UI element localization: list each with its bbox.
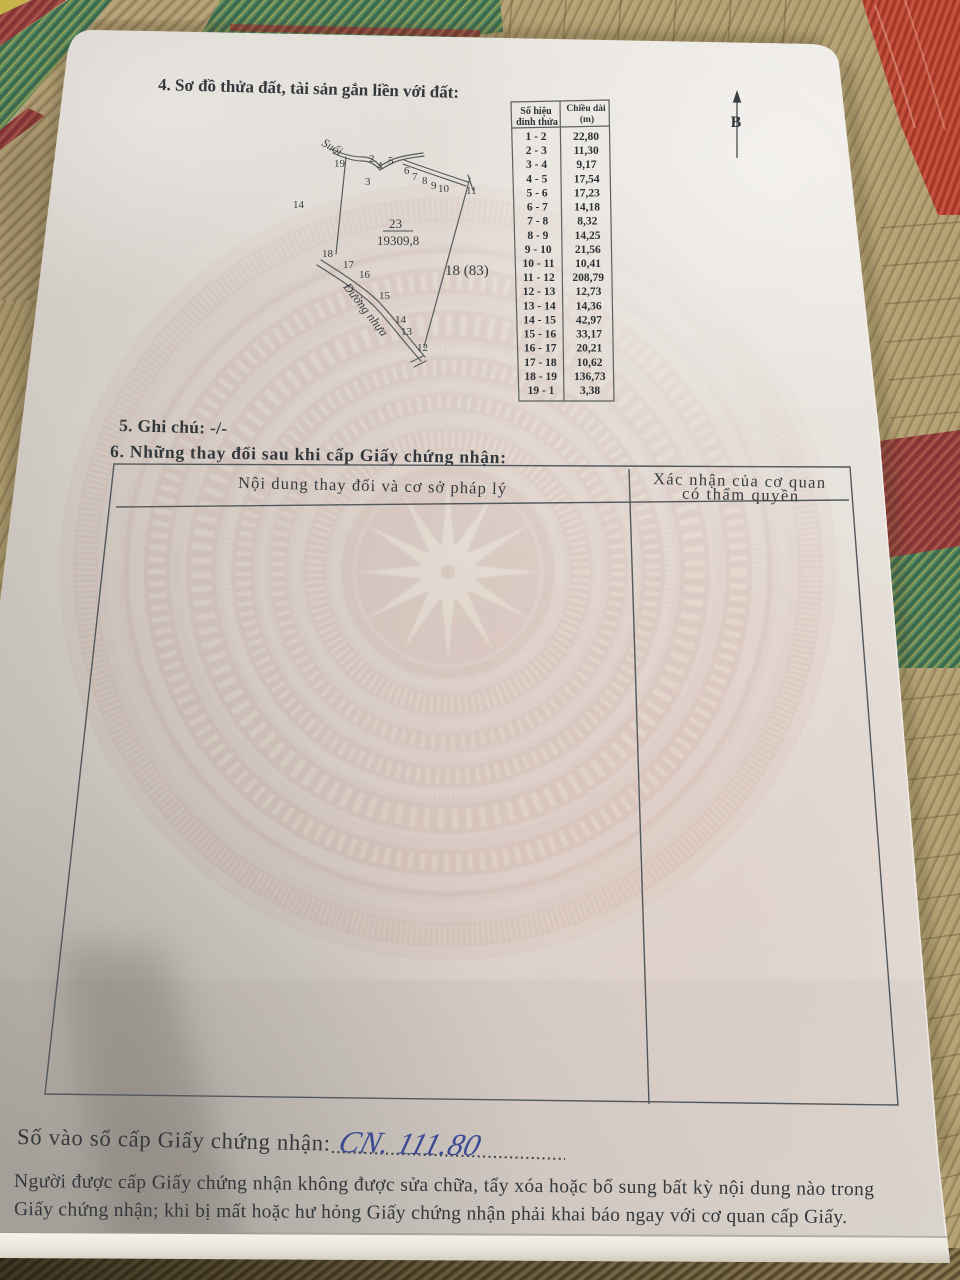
svg-text:14,25: 14,25 xyxy=(575,230,601,242)
svg-text:14: 14 xyxy=(293,199,305,211)
svg-text:Chiều dài: Chiều dài xyxy=(566,103,606,114)
svg-text:18: 18 xyxy=(322,248,334,260)
svg-text:10: 10 xyxy=(438,183,450,195)
svg-text:12 - 13: 12 - 13 xyxy=(523,286,556,298)
svg-text:10,62: 10,62 xyxy=(577,357,603,369)
svg-text:2: 2 xyxy=(369,153,375,165)
svg-text:14: 14 xyxy=(395,314,407,326)
svg-text:20,21: 20,21 xyxy=(576,343,602,355)
svg-text:17 - 18: 17 - 18 xyxy=(524,357,557,369)
svg-text:23: 23 xyxy=(389,216,402,231)
svg-text:7 - 8: 7 - 8 xyxy=(527,216,548,228)
svg-text:9,17: 9,17 xyxy=(576,159,596,171)
svg-text:9: 9 xyxy=(431,180,437,192)
svg-text:8: 8 xyxy=(422,175,428,187)
svg-text:17,54: 17,54 xyxy=(574,173,600,185)
svg-text:10 - 11: 10 - 11 xyxy=(523,258,555,270)
svg-text:đỉnh thửa: đỉnh thửa xyxy=(516,117,558,128)
svg-text:6 - 7: 6 - 7 xyxy=(527,202,548,214)
svg-text:17,23: 17,23 xyxy=(574,187,600,199)
svg-text:3 - 4: 3 - 4 xyxy=(526,159,547,171)
svg-text:11 - 12: 11 - 12 xyxy=(523,272,555,284)
svg-text:(m): (m) xyxy=(580,114,594,125)
svg-text:7: 7 xyxy=(412,171,418,183)
svg-text:16: 16 xyxy=(359,269,371,281)
svg-text:5. Ghi chú: -/-: 5. Ghi chú: -/- xyxy=(119,415,228,438)
svg-text:6: 6 xyxy=(404,165,410,177)
svg-text:8 - 9: 8 - 9 xyxy=(527,230,548,242)
svg-text:11: 11 xyxy=(466,185,477,197)
svg-text:17: 17 xyxy=(343,259,355,271)
svg-text:42,97: 42,97 xyxy=(576,314,602,326)
svg-text:CN. 111.80: CN. 111.80 xyxy=(335,1125,485,1163)
svg-text:208,79: 208,79 xyxy=(572,272,604,284)
svg-text:B: B xyxy=(731,114,742,131)
svg-text:136,73: 136,73 xyxy=(574,371,606,383)
svg-text:14 - 15: 14 - 15 xyxy=(523,314,556,326)
svg-text:5: 5 xyxy=(388,155,394,167)
svg-text:13 - 14: 13 - 14 xyxy=(523,300,556,312)
svg-text:33,17: 33,17 xyxy=(576,329,602,341)
svg-text:19 - 1: 19 - 1 xyxy=(528,385,555,397)
svg-text:19: 19 xyxy=(334,158,346,170)
svg-text:18 (83): 18 (83) xyxy=(445,263,489,279)
svg-text:12,73: 12,73 xyxy=(575,286,601,298)
svg-text:3: 3 xyxy=(365,176,371,188)
svg-text:14,18: 14,18 xyxy=(574,202,600,214)
svg-text:10,41: 10,41 xyxy=(575,258,601,270)
svg-text:22,80: 22,80 xyxy=(573,131,599,143)
svg-text:8,32: 8,32 xyxy=(577,216,597,228)
svg-text:21,56: 21,56 xyxy=(575,244,601,256)
svg-text:15: 15 xyxy=(379,290,391,302)
svg-text:4 - 5: 4 - 5 xyxy=(526,173,547,185)
svg-text:5 - 6: 5 - 6 xyxy=(527,187,548,199)
svg-text:16 - 17: 16 - 17 xyxy=(524,343,557,355)
svg-text:12: 12 xyxy=(417,342,428,354)
svg-text:18 - 19: 18 - 19 xyxy=(524,371,557,383)
svg-text:19309,8: 19309,8 xyxy=(377,233,419,248)
svg-text:Số hiệu: Số hiệu xyxy=(520,106,552,117)
svg-text:13: 13 xyxy=(401,326,413,338)
svg-text:3,38: 3,38 xyxy=(580,385,600,397)
svg-text:4: 4 xyxy=(377,160,383,172)
svg-text:15 - 16: 15 - 16 xyxy=(524,329,557,341)
svg-text:2 - 3: 2 - 3 xyxy=(526,145,547,157)
svg-text:9 - 10: 9 - 10 xyxy=(525,244,552,256)
svg-text:1 - 2: 1 - 2 xyxy=(525,131,546,143)
svg-text:11,30: 11,30 xyxy=(574,145,599,157)
svg-text:14,36: 14,36 xyxy=(576,300,602,312)
